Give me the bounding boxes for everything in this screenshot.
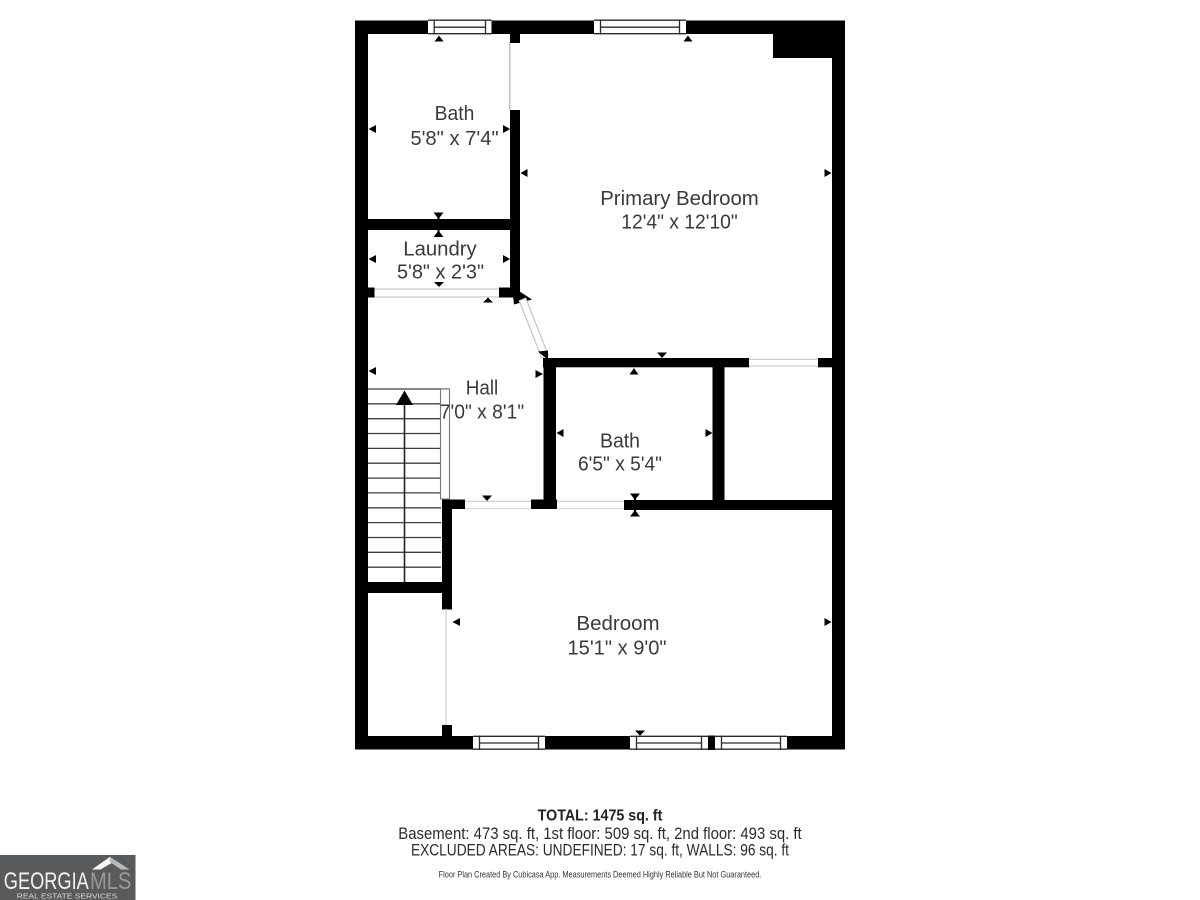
svg-text:Bath: Bath	[600, 430, 640, 453]
svg-text:EXCLUDED AREAS: UNDEFINED: 17: EXCLUDED AREAS: UNDEFINED: 17 sq. ft, WA…	[411, 842, 789, 860]
svg-text:5'8" x 2'3": 5'8" x 2'3"	[397, 260, 484, 283]
svg-text:Primary Bedroom: Primary Bedroom	[600, 187, 759, 210]
svg-text:REAL ESTATE SERVICES: REAL ESTATE SERVICES	[17, 891, 118, 900]
svg-text:7'0" x 8'1": 7'0" x 8'1"	[440, 400, 524, 423]
svg-text:15'1" x 9'0": 15'1" x 9'0"	[568, 637, 667, 660]
svg-text:12'4" x 12'10": 12'4" x 12'10"	[621, 211, 738, 234]
svg-text:Basement: 473 sq. ft, 1st floo: Basement: 473 sq. ft, 1st floor: 509 sq.…	[398, 825, 802, 843]
svg-text:Bedroom: Bedroom	[576, 612, 659, 635]
svg-text:Laundry: Laundry	[403, 237, 477, 260]
svg-text:TOTAL: 1475 sq. ft: TOTAL: 1475 sq. ft	[538, 808, 663, 825]
svg-text:6'5" x 5'4": 6'5" x 5'4"	[578, 453, 662, 476]
svg-text:Hall: Hall	[466, 377, 499, 400]
svg-text:5'8" x 7'4": 5'8" x 7'4"	[410, 127, 498, 150]
svg-text:Bath: Bath	[435, 102, 475, 125]
svg-text:Floor Plan Created By Cubicasa: Floor Plan Created By Cubicasa App. Meas…	[439, 869, 762, 879]
